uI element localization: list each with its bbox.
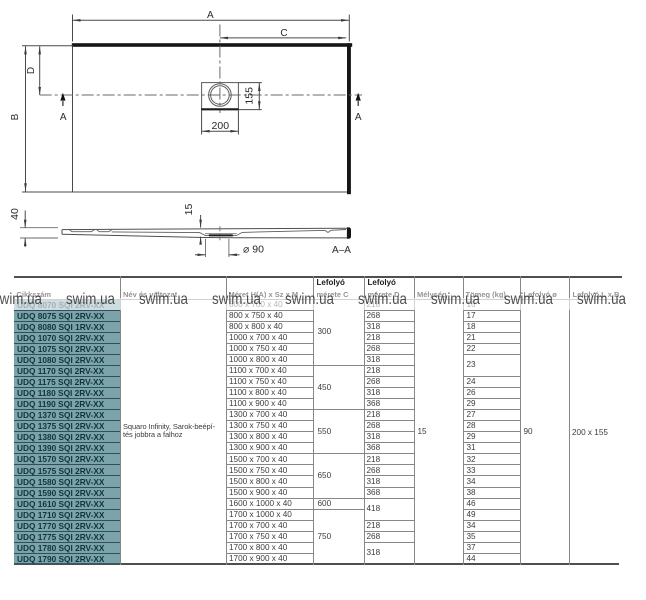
svg-text:200: 200 (212, 120, 230, 132)
svg-text:B: B (10, 113, 21, 120)
svg-text:A: A (60, 112, 67, 123)
svg-text:155: 155 (243, 87, 255, 105)
svg-text:A–A: A–A (332, 245, 351, 256)
svg-text:D: D (26, 67, 37, 74)
svg-text:⌀ 90: ⌀ 90 (243, 243, 264, 255)
svg-text:A: A (355, 112, 362, 123)
svg-text:40: 40 (9, 208, 21, 220)
svg-text:A: A (207, 10, 214, 21)
svg-text:C: C (280, 28, 287, 39)
svg-text:15: 15 (183, 204, 195, 216)
